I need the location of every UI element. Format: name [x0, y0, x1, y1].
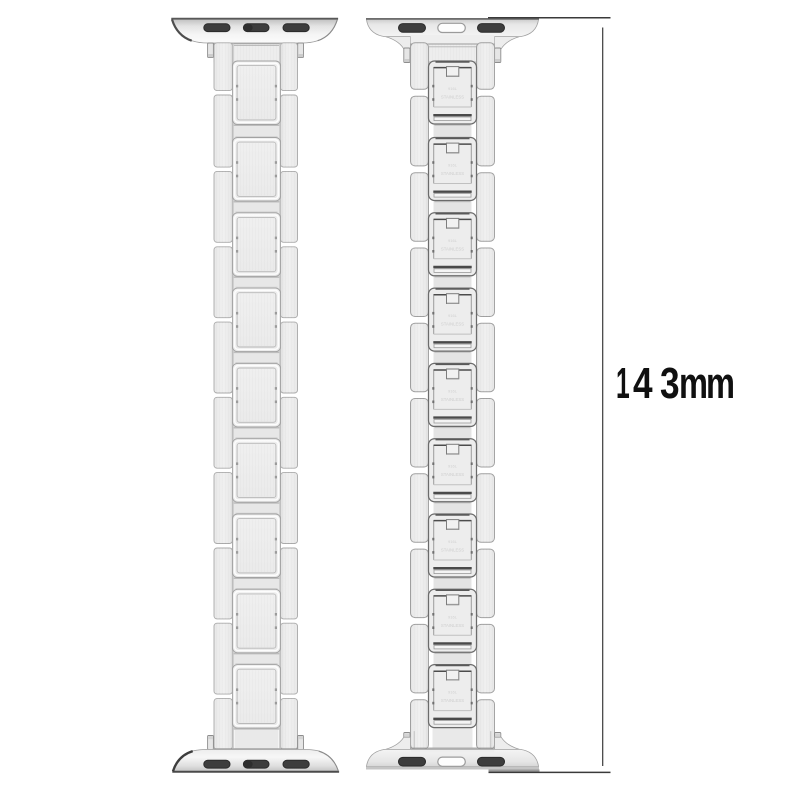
- svg-text:916L: 916L: [448, 614, 458, 619]
- svg-text:STAINLESS: STAINLESS: [441, 698, 464, 703]
- svg-text:STAINLESS: STAINLESS: [441, 397, 464, 402]
- svg-text:916L: 916L: [448, 238, 458, 243]
- svg-text:STAINLESS: STAINLESS: [441, 322, 464, 327]
- svg-text:916L: 916L: [448, 464, 458, 469]
- svg-text:916L: 916L: [448, 163, 458, 168]
- svg-text:916L: 916L: [448, 388, 458, 393]
- svg-text:916L: 916L: [448, 313, 458, 318]
- svg-text:STAINLESS: STAINLESS: [441, 95, 464, 100]
- svg-text:STAINLESS: STAINLESS: [441, 548, 464, 553]
- svg-text:STAINLESS: STAINLESS: [441, 472, 464, 477]
- svg-text:STAINLESS: STAINLESS: [441, 623, 464, 628]
- svg-text:STAINLESS: STAINLESS: [441, 171, 464, 176]
- svg-text:916L: 916L: [448, 539, 458, 544]
- svg-text:916L: 916L: [448, 690, 458, 695]
- svg-text:916L: 916L: [448, 86, 458, 91]
- svg-text:STAINLESS: STAINLESS: [441, 246, 464, 251]
